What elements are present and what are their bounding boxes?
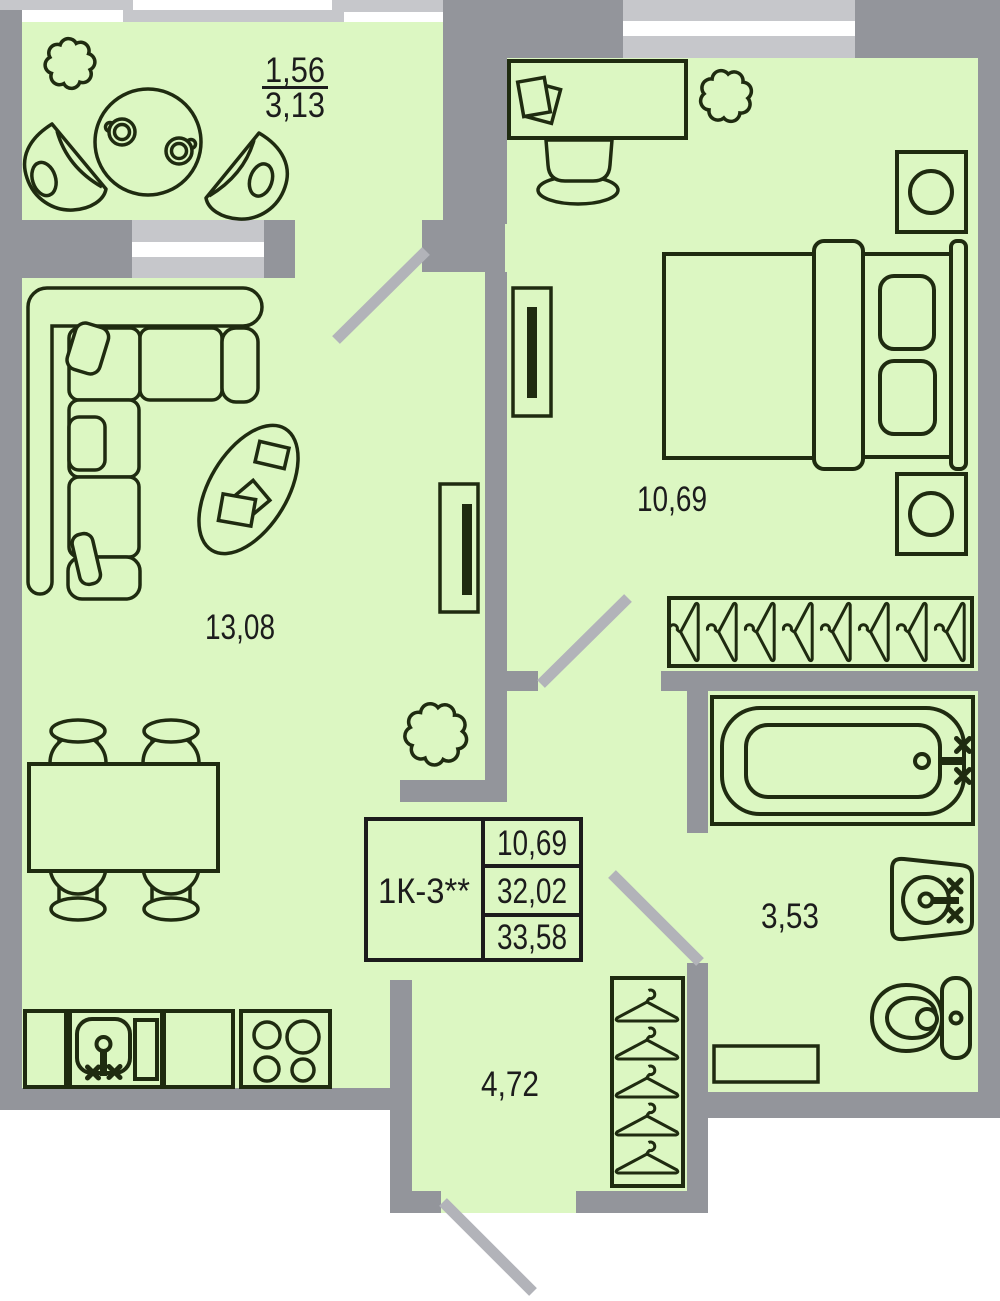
svg-text:4,72: 4,72 bbox=[481, 1065, 539, 1104]
svg-text:33,58: 33,58 bbox=[497, 918, 567, 957]
svg-text:32,02: 32,02 bbox=[497, 872, 567, 911]
svg-text:1К-3**: 1К-3** bbox=[378, 872, 470, 911]
svg-text:3,13: 3,13 bbox=[265, 86, 325, 125]
svg-text:1,56: 1,56 bbox=[265, 51, 325, 90]
svg-text:10,69: 10,69 bbox=[637, 480, 707, 519]
svg-text:3,53: 3,53 bbox=[761, 897, 819, 936]
svg-text:13,08: 13,08 bbox=[205, 608, 275, 647]
svg-text:10,69: 10,69 bbox=[497, 824, 567, 863]
